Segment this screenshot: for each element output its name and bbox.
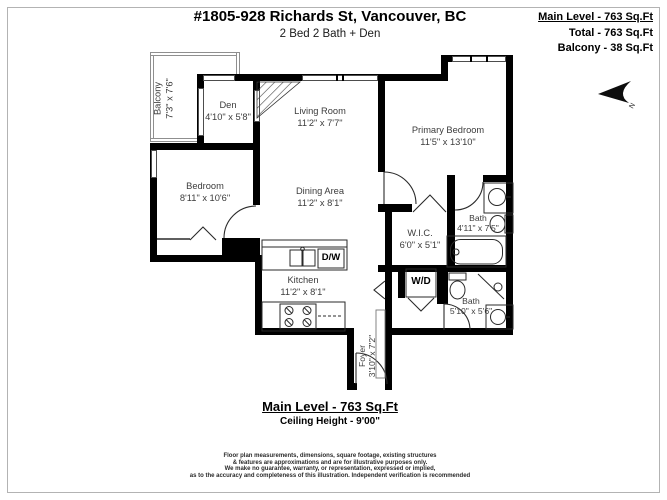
kitchen-sink-basin bbox=[303, 250, 315, 266]
washer-dryer-label: W/D bbox=[406, 276, 436, 287]
room-name: Bath bbox=[443, 213, 513, 223]
room-label-foyer: Foyer 3'10" x 7'2" bbox=[357, 311, 377, 401]
room-dims: 6'0" x 5'1" bbox=[360, 240, 480, 252]
main-bath-toilet-tank bbox=[449, 273, 466, 280]
room-label-living-room: Living Room 11'2" x 7'7" bbox=[260, 106, 380, 129]
room-dims: 11'2" x 8'1" bbox=[260, 198, 380, 210]
dishwasher-label: D/W bbox=[318, 252, 344, 263]
bifold-wic bbox=[413, 195, 446, 212]
room-label-kitchen: Kitchen 11'2" x 8'1" bbox=[243, 275, 363, 298]
door-arc-primary bbox=[384, 172, 416, 204]
bifold-hall-closet bbox=[374, 281, 385, 299]
room-name: Bedroom bbox=[145, 181, 265, 193]
north-arrow: N bbox=[598, 81, 637, 110]
room-dims: 5'10" x 5'6" bbox=[436, 306, 506, 316]
room-name: Foyer bbox=[357, 311, 367, 401]
room-name: Dining Area bbox=[260, 186, 380, 198]
room-label-primary-bedroom: Primary Bedroom 11'5" x 13'10" bbox=[388, 125, 508, 148]
foyer-closet bbox=[376, 310, 385, 378]
footer-main-level: Main Level - 763 Sq.Ft bbox=[180, 399, 480, 414]
room-name: Bath bbox=[436, 296, 506, 306]
room-name: Living Room bbox=[260, 106, 380, 118]
stove-burners bbox=[285, 307, 311, 327]
disclaimer-line: We make no guarantee, warranty, or repre… bbox=[130, 466, 530, 473]
ensuite-sink bbox=[489, 189, 506, 206]
room-dims: 4'11" x 7'5" bbox=[443, 223, 513, 233]
room-dims: 8'11" x 10'6" bbox=[145, 193, 265, 205]
disclaimer-line: as to the accuracy and completeness of t… bbox=[130, 473, 530, 480]
room-label-dining-area: Dining Area 11'2" x 8'1" bbox=[260, 186, 380, 209]
north-arrow-icon bbox=[598, 81, 631, 103]
disclaimer: Floor plan measurements, dimensions, squ… bbox=[130, 453, 530, 479]
room-dims: 11'2" x 8'1" bbox=[243, 287, 363, 299]
shower-head bbox=[494, 283, 502, 291]
room-label-balcony: Balcony 7'3" x 7'6" bbox=[153, 54, 176, 144]
stove bbox=[280, 304, 316, 329]
room-dims: 3'10" x 7'2" bbox=[367, 311, 377, 401]
room-name: Primary Bedroom bbox=[388, 125, 508, 137]
room-dims: 11'5" x 13'10" bbox=[388, 137, 508, 149]
bifold-wd bbox=[408, 298, 434, 311]
bifold-bedroom-closet bbox=[190, 227, 216, 240]
room-name: Kitchen bbox=[243, 275, 363, 287]
disclaimer-line: & features are approximations and are fo… bbox=[130, 460, 530, 467]
kitchen-lower-counter bbox=[262, 302, 345, 331]
north-label: N bbox=[628, 102, 637, 110]
room-dims: 7'3" x 7'6" bbox=[164, 54, 176, 144]
door-arc-bedroom bbox=[224, 206, 256, 238]
kitchen-sink-basin bbox=[290, 250, 302, 266]
floor-plan-page: #1805-928 Richards St, Vancouver, BC 2 B… bbox=[0, 0, 667, 500]
room-label-bedroom: Bedroom 8'11" x 10'6" bbox=[145, 181, 265, 204]
room-name: Balcony bbox=[153, 54, 165, 144]
room-label-bath-main: Bath 5'10" x 5'6" bbox=[436, 296, 506, 316]
footer-ceiling-height: Ceiling Height - 9'00" bbox=[180, 416, 480, 427]
room-dims: 11'2" x 7'7" bbox=[260, 118, 380, 130]
door-arc-ensuite bbox=[455, 182, 483, 210]
room-label-bath-ensuite: Bath 4'11" x 7'5" bbox=[443, 213, 513, 233]
disclaimer-line: Floor plan measurements, dimensions, squ… bbox=[130, 453, 530, 460]
